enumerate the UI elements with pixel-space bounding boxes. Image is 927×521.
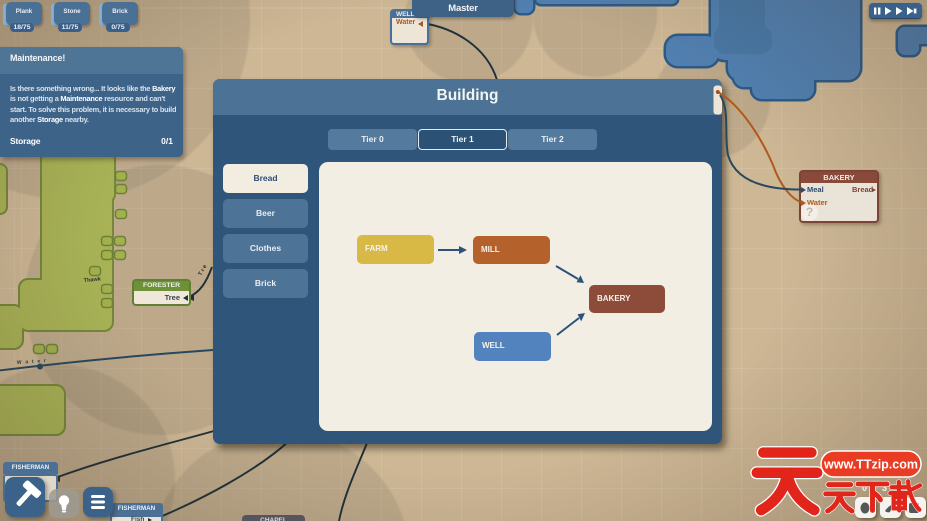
svg-text:www.TTzip.com: www.TTzip.com (823, 458, 918, 472)
